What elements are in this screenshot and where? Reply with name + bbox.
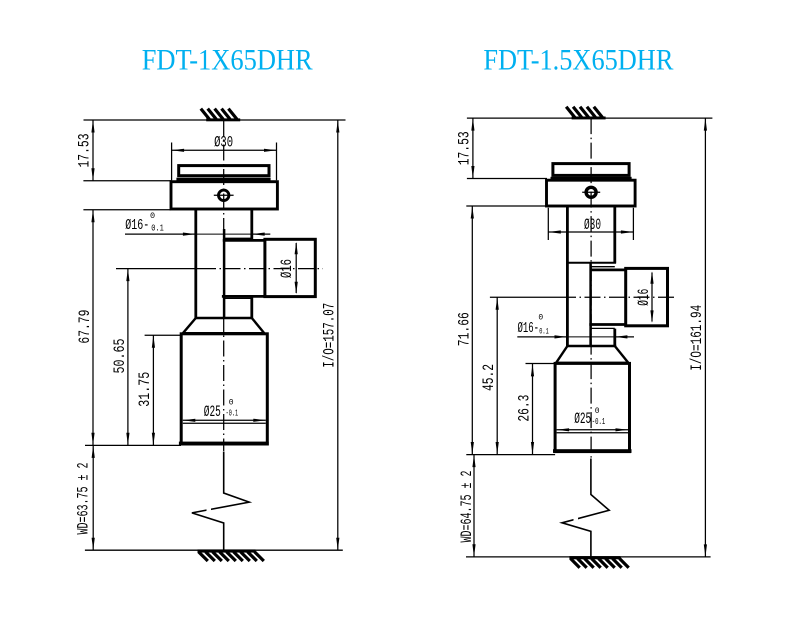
svg-text:I/O=161.94: I/O=161.94 [688, 305, 706, 371]
svg-text:Ø25: Ø25 [574, 410, 591, 428]
svg-text:-0.1: -0.1 [226, 409, 239, 419]
svg-text:-0.1: -0.1 [592, 417, 606, 427]
svg-text:Ø16-: Ø16- [125, 217, 149, 234]
svg-text:WD=64.75 ± 2: WD=64.75 ± 2 [458, 471, 476, 543]
svg-text:0.1: 0.1 [151, 222, 164, 233]
svg-text:26.3: 26.3 [516, 395, 534, 422]
svg-text:Ø30: Ø30 [584, 216, 601, 234]
svg-text:45.2: 45.2 [480, 364, 498, 391]
svg-text:67.79: 67.79 [76, 310, 94, 344]
svg-text:31.75: 31.75 [136, 372, 154, 407]
svg-text:17.53: 17.53 [76, 134, 94, 168]
svg-text:I/O=157.07: I/O=157.07 [320, 303, 338, 368]
svg-text:0: 0 [595, 407, 600, 416]
svg-text:0: 0 [229, 399, 234, 408]
svg-text:Ø16: Ø16 [635, 289, 653, 306]
svg-text:FDT-1.5X65DHR: FDT-1.5X65DHR [483, 44, 673, 76]
svg-text:0: 0 [150, 211, 155, 221]
svg-text:0: 0 [538, 314, 543, 323]
svg-text:17.53: 17.53 [456, 131, 474, 165]
svg-text:Ø16: Ø16 [278, 259, 296, 278]
svg-text:50.65: 50.65 [111, 339, 129, 374]
svg-text:0.1: 0.1 [539, 326, 549, 336]
svg-text:FDT-1X65DHR: FDT-1X65DHR [142, 44, 313, 76]
svg-text:WD=63.75 ± 2: WD=63.75 ± 2 [74, 463, 92, 535]
svg-text:Ø25: Ø25 [204, 403, 221, 421]
svg-text:Ø16-: Ø16- [518, 320, 540, 337]
svg-text:Ø30: Ø30 [214, 133, 233, 151]
svg-text:71.66: 71.66 [455, 312, 473, 346]
